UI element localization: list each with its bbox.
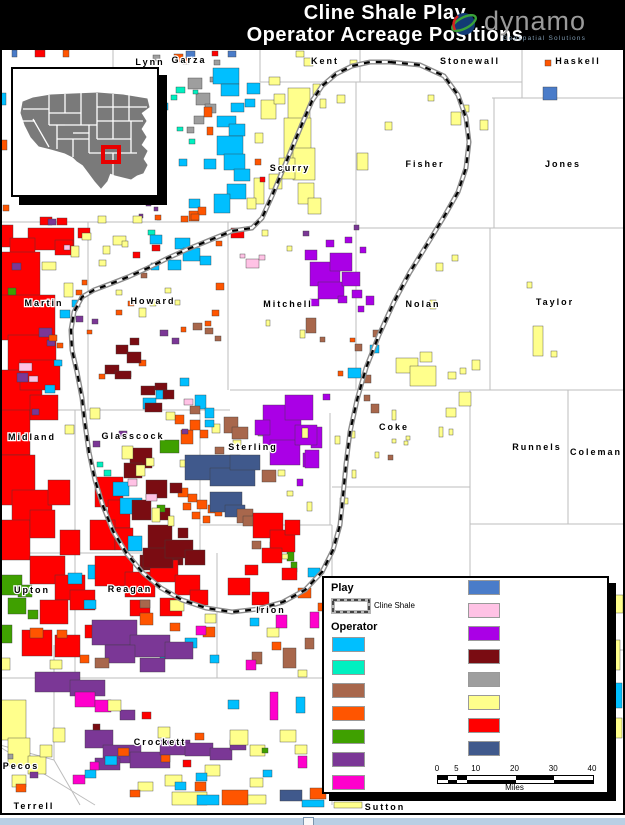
operator-swatch bbox=[332, 706, 365, 721]
county-label: Scurry bbox=[270, 163, 311, 173]
map-export-page: LynnGarzaKentStonewallHaskellScurryFishe… bbox=[0, 0, 625, 825]
logo-text-wrap: dynamo Geospatial Solutions bbox=[484, 8, 586, 42]
logo-tagline: Geospatial Solutions bbox=[484, 35, 586, 42]
scale-tick-label: 0 bbox=[435, 764, 439, 773]
county-label: Martin bbox=[25, 298, 64, 308]
scale-tick-label: 10 bbox=[471, 764, 480, 773]
scale-bar: 0510203040 Miles bbox=[435, 764, 598, 790]
scale-bar-unit: Miles bbox=[437, 783, 592, 792]
county-label: Garza bbox=[171, 55, 206, 65]
legend-box: Play Cline Shale Operator 0510203040 Mil… bbox=[322, 576, 609, 794]
scale-tick-label: 40 bbox=[588, 764, 597, 773]
us-inset-map bbox=[11, 67, 159, 197]
county-label: Howard bbox=[130, 296, 175, 306]
county-label: Crockett bbox=[134, 737, 187, 747]
horizontal-scrollbar-thumb[interactable] bbox=[303, 817, 314, 825]
operator-swatch bbox=[468, 626, 500, 641]
operator-swatch bbox=[468, 718, 500, 733]
logo-name: dynamo bbox=[484, 8, 586, 35]
operator-swatch bbox=[332, 729, 365, 744]
county-label: Sterling bbox=[228, 442, 278, 452]
county-label: Lynn bbox=[135, 57, 164, 67]
county-label: Kent bbox=[311, 56, 339, 66]
title-bar: Cline Shale Play Operator Acreage Positi… bbox=[0, 0, 625, 48]
operator-swatch bbox=[468, 603, 500, 618]
operator-swatch bbox=[332, 775, 365, 790]
scale-tick-label: 30 bbox=[549, 764, 558, 773]
county-label: Terrell bbox=[14, 801, 55, 811]
county-label: Midland bbox=[8, 432, 56, 442]
legend-play-header: Play bbox=[331, 582, 354, 594]
county-label: Reagan bbox=[108, 584, 153, 594]
dynamo-swirl-icon bbox=[449, 8, 479, 43]
operator-swatch bbox=[468, 695, 500, 710]
operator-swatch bbox=[468, 741, 500, 756]
legend-operator-header: Operator bbox=[331, 621, 377, 633]
legend-play-item-label: Cline Shale bbox=[374, 601, 415, 610]
county-label: Runnels bbox=[512, 442, 562, 452]
county-label: Haskell bbox=[555, 56, 601, 66]
county-label: Stonewall bbox=[440, 56, 500, 66]
play-outline-symbol bbox=[330, 597, 372, 620]
county-label: Glasscock bbox=[101, 431, 164, 441]
county-label: Mitchell bbox=[263, 299, 313, 309]
operator-swatch bbox=[468, 672, 500, 687]
county-label: Jones bbox=[545, 159, 581, 169]
scale-tick-label: 20 bbox=[510, 764, 519, 773]
county-label: Sutton bbox=[365, 802, 406, 812]
county-label: Coke bbox=[379, 422, 409, 432]
scale-tick-label: 5 bbox=[454, 764, 458, 773]
us-inset-svg bbox=[13, 69, 157, 195]
operator-swatch bbox=[468, 649, 500, 664]
county-label: Irion bbox=[256, 605, 286, 615]
county-label: Nolan bbox=[405, 299, 440, 309]
county-label: Pecos bbox=[3, 761, 40, 771]
dynamo-logo: dynamo Geospatial Solutions bbox=[449, 8, 586, 43]
operator-swatch bbox=[332, 637, 365, 652]
county-label: Coleman bbox=[570, 447, 622, 457]
operator-swatch bbox=[332, 660, 365, 675]
county-label: Fisher bbox=[405, 159, 444, 169]
operator-swatch bbox=[332, 683, 365, 698]
operator-swatch bbox=[332, 752, 365, 767]
county-label: Taylor bbox=[536, 297, 574, 307]
operator-swatch bbox=[468, 580, 500, 595]
county-label: Upton bbox=[14, 585, 50, 595]
